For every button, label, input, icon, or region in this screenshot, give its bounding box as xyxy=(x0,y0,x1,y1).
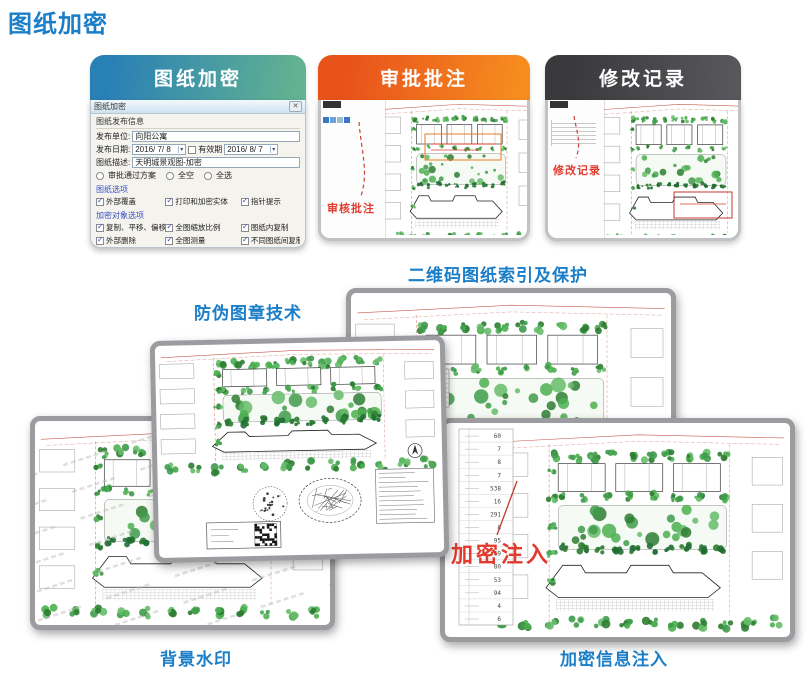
svg-text:8: 8 xyxy=(497,459,501,466)
encrypt-dialog: 图纸加密 ✕ 图纸发布信息 发布单位: 向阳公寓 发布日期: 2016/ 7/ … xyxy=(90,100,306,248)
card-encrypt-header: 图纸加密 xyxy=(90,55,306,100)
group-title: 图纸发布信息 xyxy=(96,116,300,129)
dialog-title: 图纸加密 xyxy=(94,101,126,112)
svg-text:60: 60 xyxy=(494,433,502,440)
svg-text:53: 53 xyxy=(494,577,502,584)
valid-checkbox[interactable] xyxy=(188,146,196,154)
radio-all-empty[interactable] xyxy=(166,172,174,180)
dropdown-icon[interactable]: ▾ xyxy=(270,146,275,153)
unit-input[interactable]: 向阳公寓 xyxy=(132,131,300,142)
unit-label: 发布单位: xyxy=(96,131,130,142)
site-plan-inject: 60787538162918956980539446 xyxy=(445,423,790,637)
checkbox[interactable]: ✓ xyxy=(165,224,173,232)
dropdown-icon[interactable]: ▾ xyxy=(178,146,183,153)
encrypt-objects-grid: ✓复制、平移、偏移 ✓全图缩放比例 ✓图纸内复制 ✓外部删除 ✓全图测量 ✓不同… xyxy=(96,222,300,248)
card-review-title: 审批批注 xyxy=(380,64,468,91)
review-screenshot: 审核批注 xyxy=(318,100,530,241)
desc-row: 图纸描述: 天明城景观图-加密 xyxy=(96,157,300,168)
label-qr-index: 二维码图纸索引及保护 xyxy=(408,261,588,286)
svg-text:4: 4 xyxy=(497,603,501,610)
checkbox[interactable]: ✓ xyxy=(96,198,104,206)
card-history-header: 修改记录 xyxy=(545,55,741,100)
card-review-header: 审批批注 xyxy=(318,55,530,100)
sheet-encrypt-inject: 60787538162918956980539446 加密注入 xyxy=(440,418,795,642)
page-title: 图纸加密 xyxy=(8,4,108,39)
label-watermark: 背景水印 xyxy=(160,645,232,670)
svg-text:94: 94 xyxy=(494,590,502,597)
svg-text:7: 7 xyxy=(497,446,501,453)
svg-text:16: 16 xyxy=(494,498,502,505)
site-plan-history xyxy=(604,100,738,235)
radio-all-empty-label: 全空 xyxy=(178,170,194,181)
checkbox[interactable]: ✓ xyxy=(96,224,104,232)
radio-approved[interactable] xyxy=(96,172,104,180)
dialog-body: 图纸发布信息 发布单位: 向阳公寓 发布日期: 2016/ 7/ 8▾ 有效期 … xyxy=(91,114,305,248)
unit-row: 发布单位: 向阳公寓 xyxy=(96,131,300,142)
radio-select-all-label: 全选 xyxy=(216,170,232,181)
valid-label: 有效期 xyxy=(198,144,222,155)
checkbox[interactable]: ✓ xyxy=(165,237,173,245)
history-screenshot: 修改记录 xyxy=(545,100,741,241)
label-encrypt-inject: 加密信息注入 xyxy=(560,645,668,670)
checkbox[interactable]: ✓ xyxy=(241,237,249,245)
valid-date-input[interactable]: 2016/ 8/ 7▾ xyxy=(224,144,278,155)
drawing-options-grid: ✓外部覆盖 ✓打印和加密实体 ✓指针提示 xyxy=(96,196,300,207)
card-review: 审批批注 审核批注 xyxy=(318,55,530,241)
section-drawing-options: 图纸选项 xyxy=(96,184,300,195)
checkbox[interactable]: ✓ xyxy=(241,224,249,232)
checkbox[interactable]: ✓ xyxy=(96,237,104,245)
card-history-title: 修改记录 xyxy=(599,64,687,91)
date-input[interactable]: 2016/ 7/ 8▾ xyxy=(132,144,186,155)
card-history: 修改记录 修改记录 xyxy=(545,55,741,241)
checkbox[interactable]: ✓ xyxy=(165,198,173,206)
page: 图纸加密 图纸加密 图纸加密 ✕ 图纸发布信息 发布单位: 向阳公寓 发布日期:… xyxy=(0,0,806,678)
svg-text:538: 538 xyxy=(490,485,501,492)
card-encrypt: 图纸加密 图纸加密 ✕ 图纸发布信息 发布单位: 向阳公寓 发布日期: 2016… xyxy=(90,55,306,248)
desc-label: 图纸描述: xyxy=(96,157,130,168)
site-plan-review xyxy=(385,100,527,235)
desc-input[interactable]: 天明城景观图-加密 xyxy=(132,157,300,168)
inject-annotation: 加密注入 xyxy=(451,537,551,569)
review-left-panel: 审核批注 xyxy=(321,100,386,238)
svg-text:291: 291 xyxy=(490,511,501,518)
history-left-panel: 修改记录 xyxy=(548,100,605,238)
svg-text:7: 7 xyxy=(497,472,501,479)
review-annotation: 审核批注 xyxy=(327,200,375,216)
sheet-stamp xyxy=(150,335,450,563)
review-leader-line xyxy=(321,100,385,241)
label-anti-fake-stamp: 防伪图章技术 xyxy=(194,299,302,324)
history-annotation: 修改记录 xyxy=(553,162,601,178)
dialog-titlebar[interactable]: 图纸加密 ✕ xyxy=(91,100,305,114)
radio-select-all[interactable] xyxy=(204,172,212,180)
close-icon[interactable]: ✕ xyxy=(289,101,302,112)
radio-row: 审批通过方案 全空 全选 xyxy=(96,170,300,181)
date-label: 发布日期: xyxy=(96,144,130,155)
site-plan-stamp xyxy=(155,340,444,558)
section-encrypt-objects: 加密对象选项 xyxy=(96,210,300,221)
svg-text:6: 6 xyxy=(497,616,501,623)
radio-approved-label: 审批通过方案 xyxy=(108,170,156,181)
card-encrypt-title: 图纸加密 xyxy=(154,64,242,91)
date-row: 发布日期: 2016/ 7/ 8▾ 有效期 2016/ 8/ 7▾ xyxy=(96,144,300,155)
checkbox[interactable]: ✓ xyxy=(241,198,249,206)
